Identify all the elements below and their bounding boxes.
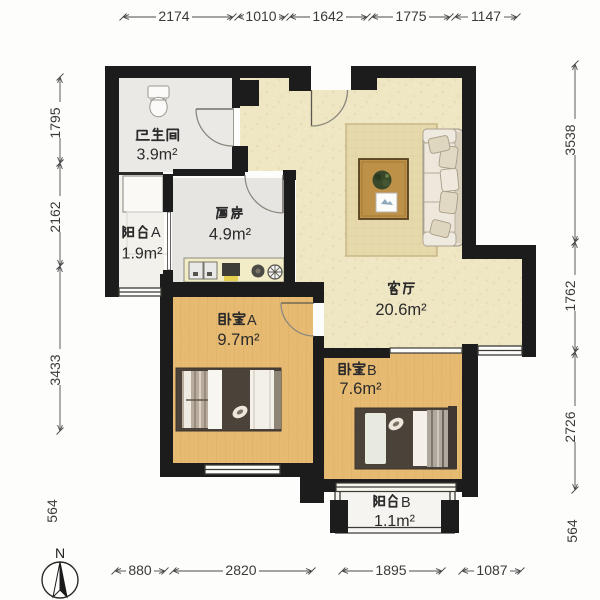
svg-text:564: 564	[564, 519, 580, 543]
svg-text:1087: 1087	[476, 562, 507, 578]
svg-text:1010: 1010	[245, 8, 276, 24]
svg-text:B: B	[367, 363, 377, 379]
svg-text:1642: 1642	[312, 8, 343, 24]
svg-text:1895: 1895	[375, 562, 406, 578]
svg-text:2174: 2174	[158, 8, 189, 24]
svg-text:1147: 1147	[471, 8, 501, 24]
svg-text:2162: 2162	[47, 201, 63, 232]
svg-text:1762: 1762	[562, 280, 578, 311]
svg-text:3433: 3433	[47, 354, 63, 385]
svg-text:B: B	[401, 495, 411, 511]
svg-text:2820: 2820	[225, 562, 256, 578]
svg-text:A: A	[247, 313, 257, 329]
svg-text:N: N	[55, 545, 65, 561]
svg-text:3538: 3538	[562, 124, 578, 155]
svg-text:1.1m²: 1.1m²	[374, 513, 416, 530]
svg-text:3.9m²: 3.9m²	[137, 147, 179, 164]
svg-text:2726: 2726	[562, 411, 578, 442]
svg-text:A: A	[151, 225, 161, 241]
svg-text:880: 880	[128, 562, 152, 578]
svg-text:1795: 1795	[47, 107, 63, 138]
svg-text:4.9m²: 4.9m²	[209, 226, 252, 244]
svg-text:1775: 1775	[395, 8, 426, 24]
svg-text:20.6m²: 20.6m²	[375, 301, 427, 319]
svg-text:564: 564	[44, 499, 60, 523]
svg-text:9.7m²: 9.7m²	[217, 331, 260, 349]
svg-text:7.6m²: 7.6m²	[339, 380, 382, 398]
svg-text:1.9m²: 1.9m²	[122, 246, 164, 263]
